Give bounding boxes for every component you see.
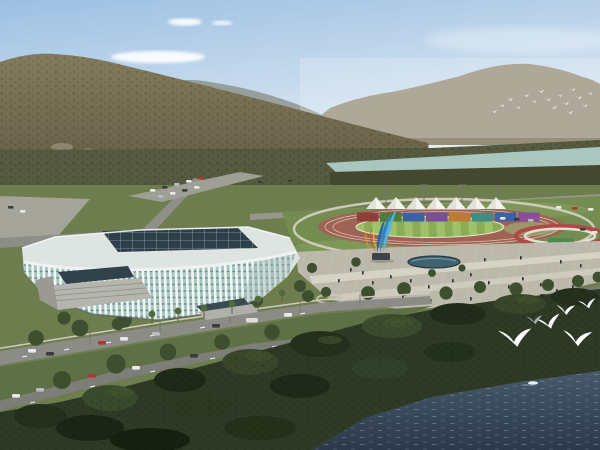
car [588, 208, 594, 211]
stand-panel [472, 213, 494, 222]
tree [160, 344, 177, 361]
person [350, 268, 352, 272]
person [372, 281, 374, 285]
person [540, 283, 542, 287]
car [150, 189, 156, 192]
car [36, 388, 44, 392]
tree [321, 287, 331, 297]
car [120, 337, 128, 341]
boat-wake [521, 384, 533, 386]
person [508, 285, 510, 289]
person [488, 281, 490, 285]
car [158, 195, 164, 198]
person [522, 277, 524, 281]
person [470, 273, 472, 277]
tree [474, 281, 486, 293]
palm-crown [149, 311, 156, 318]
car [528, 219, 534, 222]
tree [28, 330, 44, 346]
car [132, 366, 140, 370]
tree [106, 354, 125, 373]
person [520, 256, 522, 260]
palm-crown [279, 290, 285, 296]
tree [458, 264, 465, 271]
tree [572, 275, 584, 287]
tree [264, 324, 280, 340]
car [20, 210, 26, 213]
tree [428, 269, 436, 277]
person [410, 279, 412, 283]
car [194, 186, 200, 189]
car [284, 313, 292, 317]
cloud [168, 18, 202, 25]
scene-canvas [0, 0, 600, 450]
stand-panel [426, 213, 448, 222]
tree [53, 371, 71, 389]
car [98, 341, 106, 345]
tree [294, 280, 306, 292]
car [514, 218, 520, 221]
tree [439, 286, 452, 299]
person [580, 264, 582, 268]
stand-panel [357, 213, 379, 222]
car [174, 183, 180, 186]
tree [351, 257, 361, 267]
stand-panel [403, 213, 425, 222]
tree [307, 263, 317, 273]
car [28, 349, 36, 353]
person [338, 279, 340, 283]
stand-panel [495, 213, 517, 222]
bus [246, 318, 258, 323]
person [560, 260, 562, 264]
car [556, 206, 562, 209]
car [500, 217, 506, 220]
car [190, 354, 198, 358]
cloud [111, 51, 205, 63]
tree [112, 318, 125, 331]
palm-crown [201, 305, 208, 312]
cloud [212, 21, 232, 26]
palm-crown [175, 308, 182, 315]
palm-crown [255, 296, 262, 303]
car [592, 231, 598, 234]
tree [57, 311, 70, 324]
car [46, 352, 54, 356]
person [452, 279, 454, 283]
fountain-pool [408, 256, 460, 268]
car [8, 206, 14, 209]
person [484, 258, 486, 262]
car [170, 192, 176, 195]
car [88, 374, 96, 378]
tree [542, 279, 554, 291]
car [572, 207, 578, 210]
tree [214, 334, 230, 350]
person [470, 297, 472, 301]
car [186, 180, 192, 183]
person [362, 271, 364, 275]
tree [72, 320, 89, 337]
car [198, 177, 204, 180]
car [12, 394, 20, 398]
sculpture-pedestal [372, 253, 390, 260]
rendering-image [0, 0, 600, 450]
stand-panel [449, 213, 471, 222]
tree [509, 282, 522, 295]
car [162, 186, 168, 189]
car [152, 332, 160, 336]
person [390, 275, 392, 279]
car [212, 324, 220, 328]
person [428, 285, 430, 289]
tree [302, 290, 314, 302]
car [182, 189, 188, 192]
palm-crown [229, 301, 236, 308]
car [580, 228, 586, 231]
